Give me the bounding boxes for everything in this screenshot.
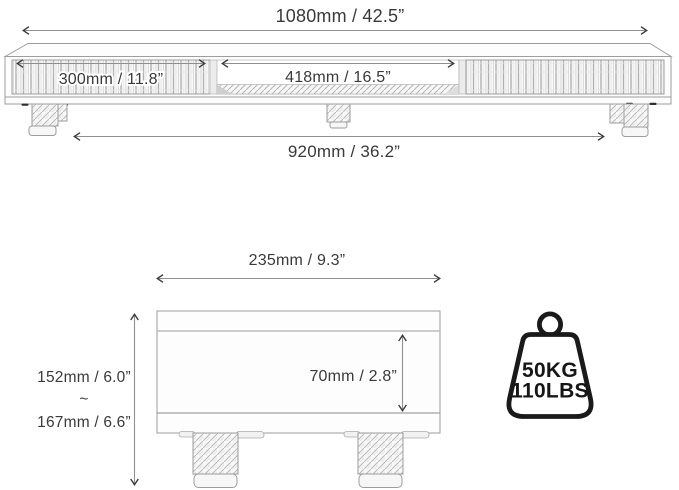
leg-span-label: 920mm / 36.2” <box>288 142 400 161</box>
max-height-label: 167mm / 6.6” <box>37 414 131 431</box>
front-right-leg-foot <box>622 127 648 137</box>
leg-mount-dash <box>22 104 29 106</box>
height-range-separator: ~ <box>79 391 88 408</box>
side-left-leg-foot <box>194 474 237 488</box>
side-right-leg-foot <box>359 474 402 488</box>
shelf-clearance-label: 70mm / 2.8” <box>309 368 397 385</box>
front-center-leg-foot <box>330 122 347 128</box>
side-panel <box>157 311 440 433</box>
cabinet-top-face <box>5 44 671 57</box>
overall-width-label: 1080mm / 42.5” <box>276 6 405 26</box>
right-drawer-front <box>466 60 664 94</box>
side-left-leg <box>193 433 238 488</box>
left-drawer-width-label: 300mm / 11.8” <box>59 71 164 88</box>
min-height-label: 152mm / 6.0” <box>37 369 131 386</box>
front-right-leg <box>610 104 648 137</box>
front-left-leg <box>29 104 67 136</box>
weight-capacity-icon: 50KG 110LBS <box>509 314 591 417</box>
leg-mount-plate <box>401 432 429 439</box>
recess-left-wall <box>210 60 217 94</box>
leg-mount-dash <box>650 103 657 105</box>
product-dimension-diagram: 1080mm / 42.5” 300mm / 11.8” 418mm / 16.… <box>0 0 679 490</box>
depth-label: 235mm / 9.3” <box>249 252 346 269</box>
front-view-diagram: 1080mm / 42.5” 300mm / 11.8” 418mm / 16.… <box>5 6 671 161</box>
side-right-leg <box>358 433 403 488</box>
leg-mount-plate <box>236 432 264 439</box>
cabinet-bottom-band <box>5 97 671 104</box>
weight-handle <box>539 314 560 335</box>
weight-lbs-label: 110LBS <box>511 380 589 403</box>
open-shelf-width-label: 418mm / 16.5” <box>285 69 391 86</box>
dimension-diagram-svg: 1080mm / 42.5” 300mm / 11.8” 418mm / 16.… <box>0 0 679 490</box>
recess-right-wall <box>459 60 466 94</box>
front-center-leg <box>327 104 350 128</box>
side-view-diagram: 235mm / 9.3” 152mm / 6.0” ~ 167mm / 6.6”… <box>37 252 440 488</box>
front-left-leg-foot <box>29 126 56 136</box>
